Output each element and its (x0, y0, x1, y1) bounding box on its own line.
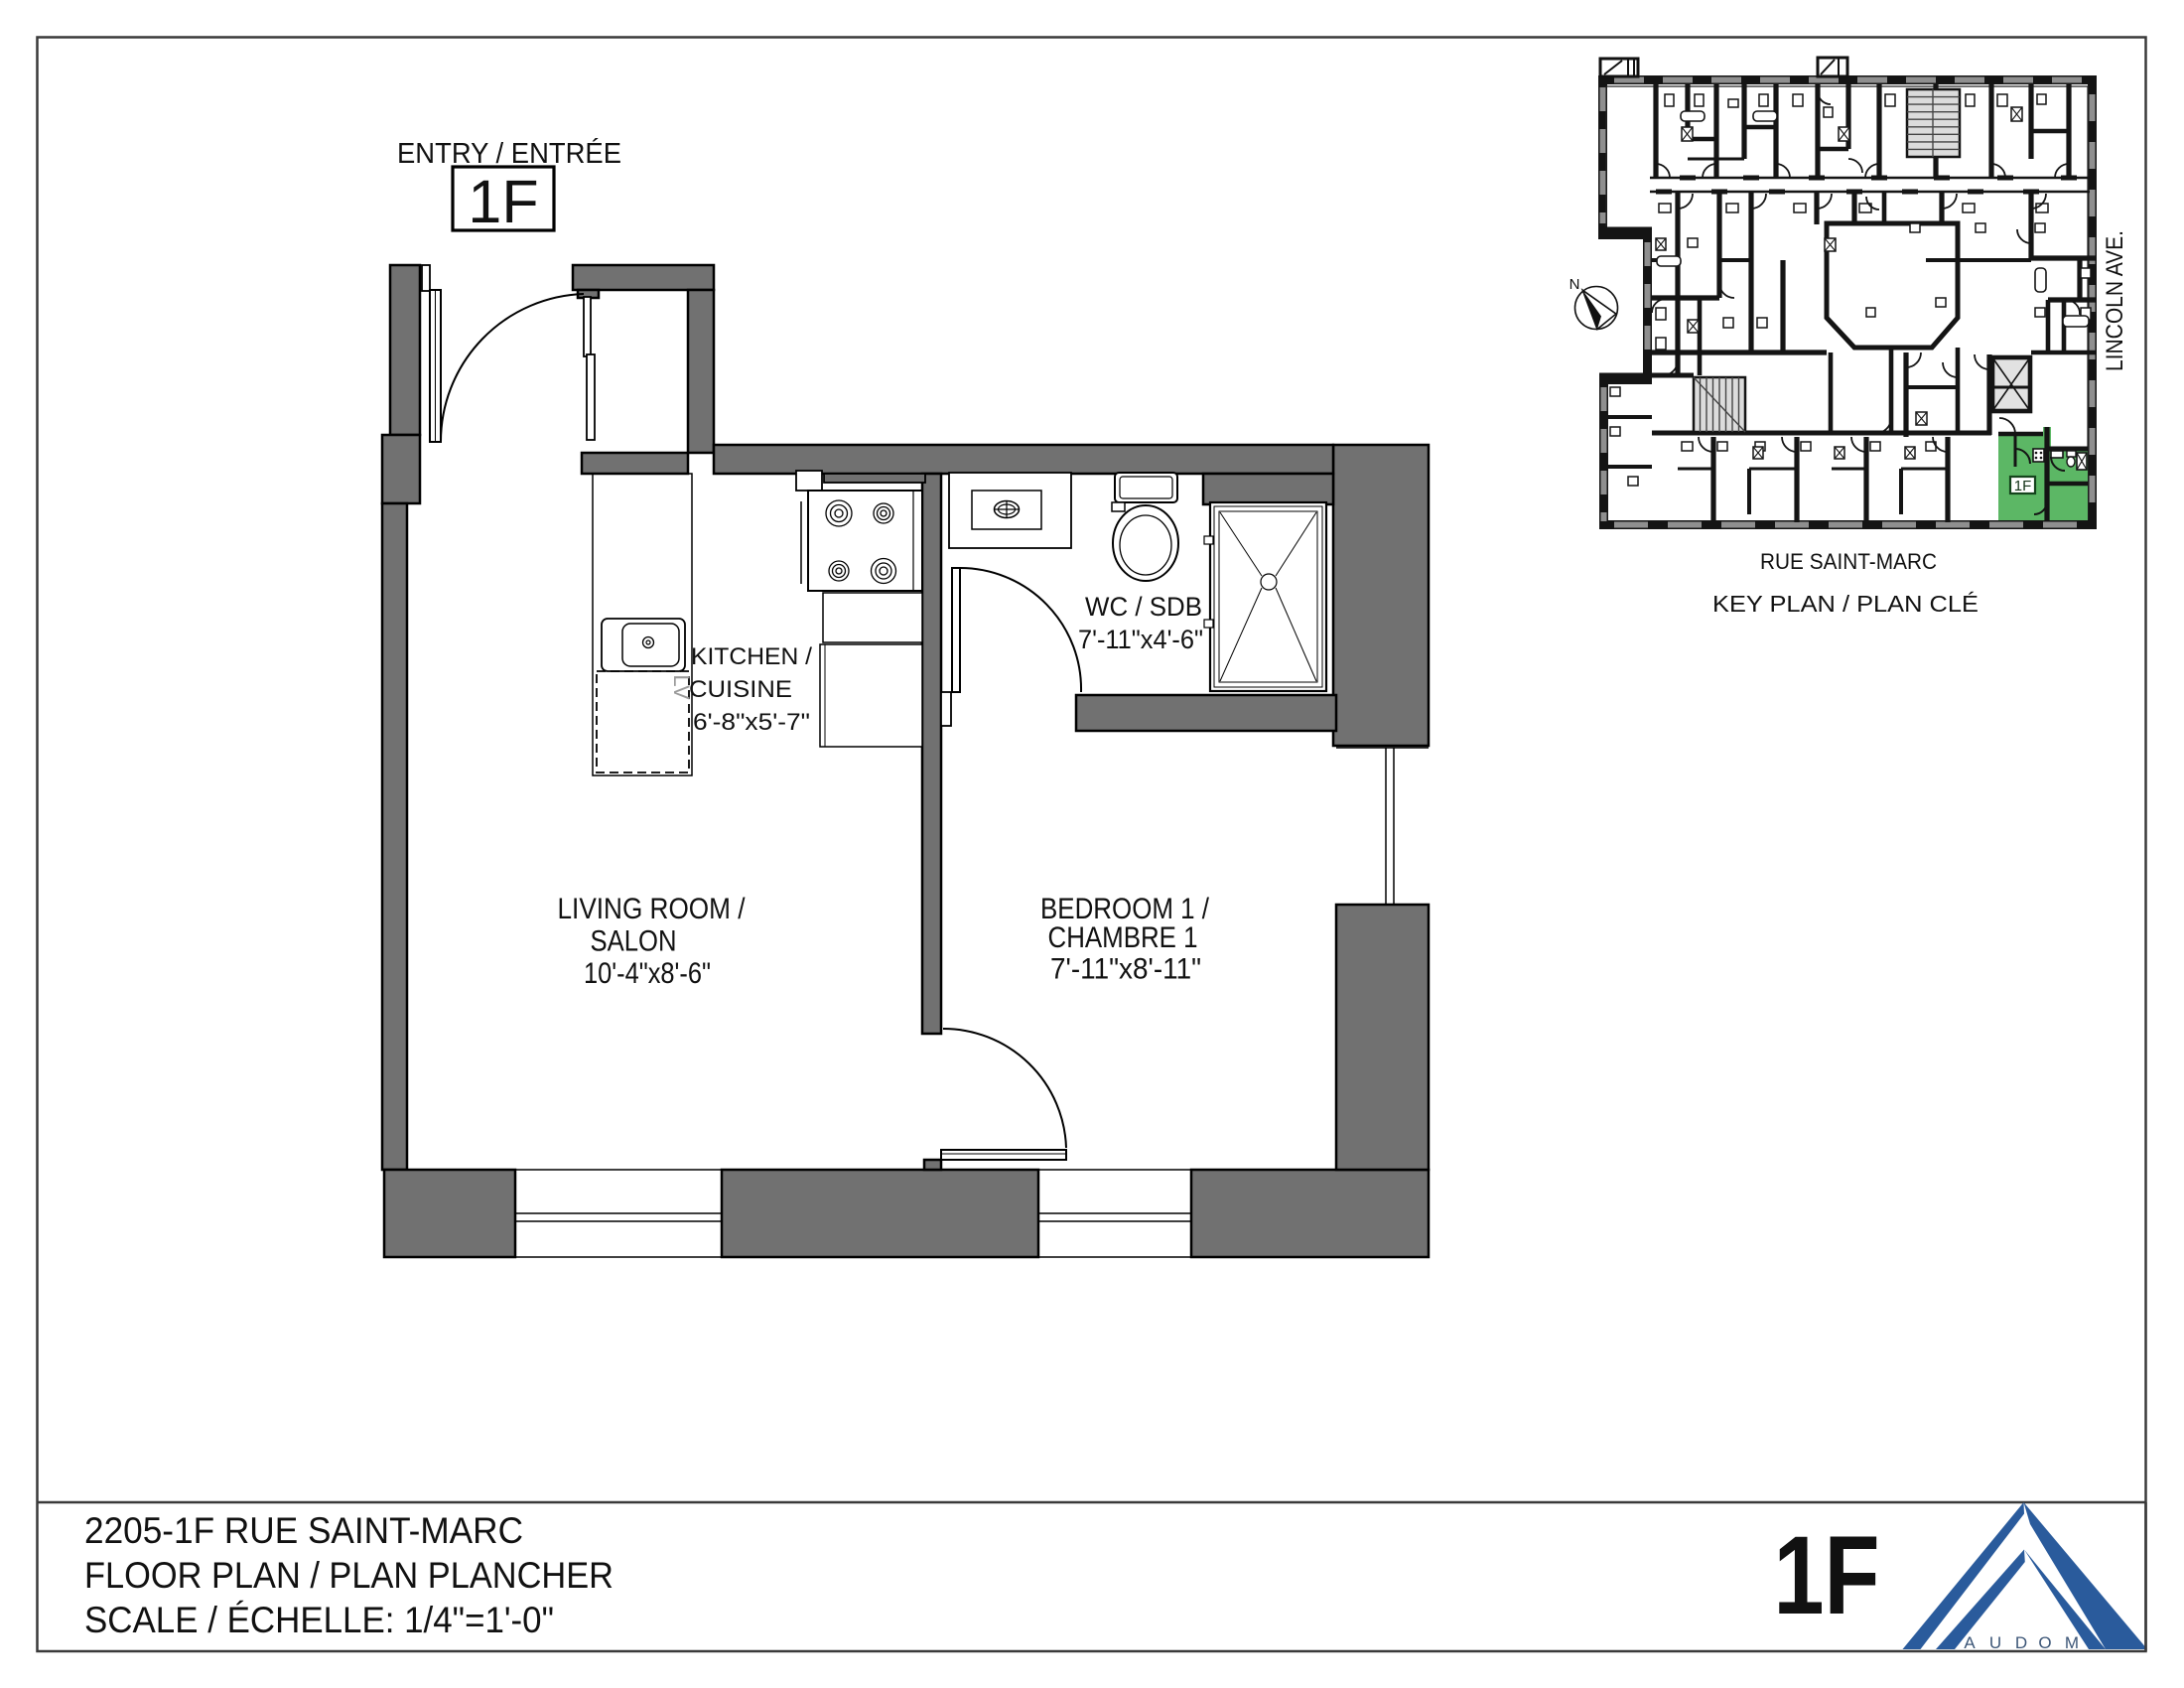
svg-text:A: A (1964, 1633, 1976, 1652)
svg-text:KEY PLAN / PLAN CLÉ: KEY PLAN / PLAN CLÉ (1712, 591, 1979, 617)
svg-text:CHAMBRE 1: CHAMBRE 1 (1048, 921, 1198, 954)
svg-text:RUE SAINT-MARC: RUE SAINT-MARC (1760, 549, 1937, 574)
svg-text:SCALE / ÉCHELLE: 1/4"=1'-0": SCALE / ÉCHELLE: 1/4"=1'-0" (84, 1599, 554, 1640)
svg-text:WC / SDB: WC / SDB (1085, 592, 1202, 622)
svg-text:N: N (1570, 276, 1580, 293)
svg-text:U: U (1989, 1633, 2001, 1652)
svg-text:7'-11"x8'-11": 7'-11"x8'-11" (1050, 953, 1201, 986)
svg-text:LINCOLN AVE.: LINCOLN AVE. (2102, 230, 2128, 371)
svg-text:O: O (2038, 1633, 2051, 1652)
svg-text:1F: 1F (468, 168, 538, 235)
svg-text:M: M (2065, 1633, 2079, 1652)
svg-text:KITCHEN /: KITCHEN / (691, 643, 812, 670)
svg-text:SALON: SALON (591, 925, 677, 958)
svg-text:LIVING ROOM /: LIVING ROOM / (558, 893, 747, 925)
svg-text:ENTRY / ENTRÉE: ENTRY / ENTRÉE (397, 137, 621, 170)
svg-text:2205-1F RUE SAINT-MARC: 2205-1F RUE SAINT-MARC (84, 1509, 523, 1551)
svg-text:7'-11"x4'-6": 7'-11"x4'-6" (1078, 625, 1203, 654)
svg-text:1F: 1F (2014, 478, 2032, 494)
svg-text:6'-8"x5'-7": 6'-8"x5'-7" (693, 709, 810, 736)
svg-text:D: D (2015, 1633, 2027, 1652)
svg-text:CUISINE: CUISINE (689, 676, 792, 703)
svg-text:1F: 1F (1774, 1513, 1880, 1637)
svg-text:10'-4"x8'-6": 10'-4"x8'-6" (584, 957, 711, 990)
svg-text:FLOOR PLAN / PLAN PLANCHER: FLOOR PLAN / PLAN PLANCHER (84, 1554, 614, 1596)
